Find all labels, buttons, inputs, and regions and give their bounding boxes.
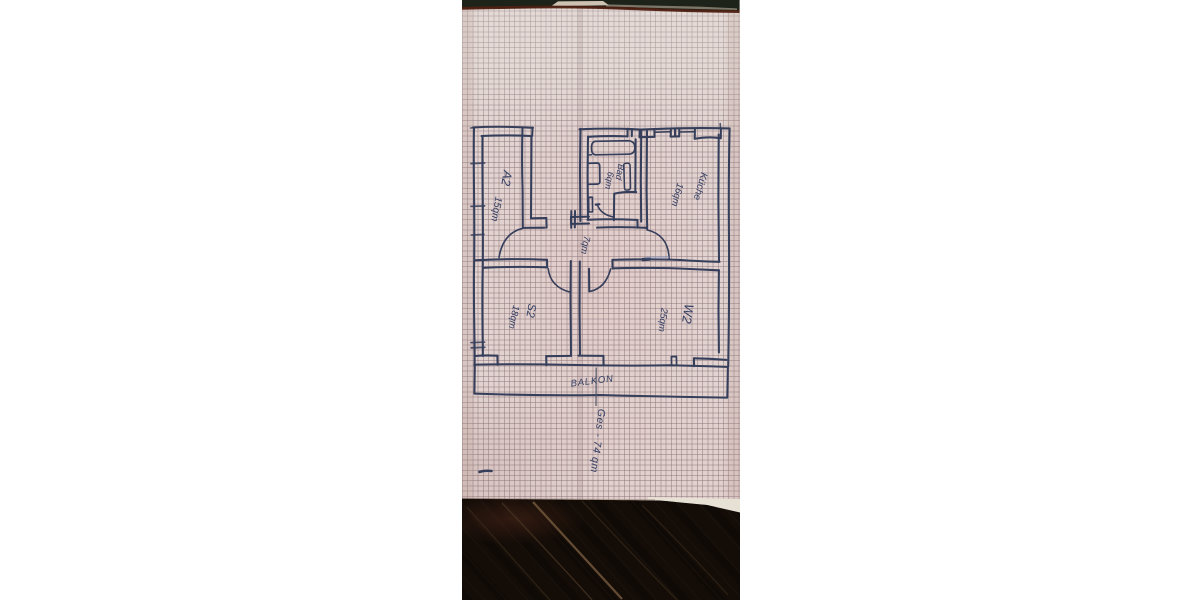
svg-text:S2: S2	[523, 303, 537, 319]
svg-text:6qm: 6qm	[603, 171, 616, 190]
svg-text:Küche: Küche	[691, 171, 710, 202]
svg-text:A2: A2	[498, 168, 514, 186]
svg-text:15qm: 15qm	[488, 196, 503, 223]
svg-text:W2: W2	[679, 303, 697, 325]
svg-text:BALKON: BALKON	[570, 373, 614, 389]
svg-text:18qm: 18qm	[506, 304, 521, 330]
svg-text:25qm: 25qm	[656, 306, 670, 332]
svg-text:16qm: 16qm	[669, 182, 685, 208]
svg-text:7qm: 7qm	[578, 235, 592, 255]
svg-text:Ges - 74 qm: Ges - 74 qm	[588, 408, 608, 473]
